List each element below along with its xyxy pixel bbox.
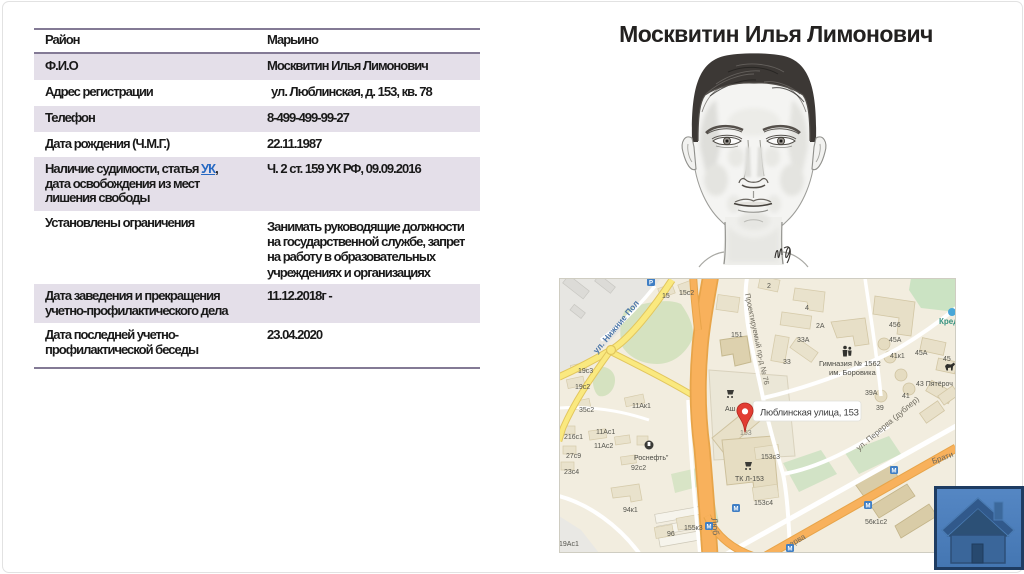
svg-text:23с4: 23с4 xyxy=(564,469,579,476)
svg-text:41к1: 41к1 xyxy=(890,353,905,360)
svg-text:153с3: 153с3 xyxy=(761,454,780,461)
svg-text:33А: 33А xyxy=(797,337,810,344)
svg-text:15с2: 15с2 xyxy=(679,290,694,297)
svg-text:94к1: 94к1 xyxy=(623,507,638,514)
svg-text:33: 33 xyxy=(783,359,791,366)
svg-text:ТК Л-153: ТК Л-153 xyxy=(735,476,764,483)
svg-text:4: 4 xyxy=(805,305,809,312)
svg-text:2: 2 xyxy=(767,283,771,290)
svg-text:2А: 2А xyxy=(816,323,825,330)
svg-text:43 Пятёроч: 43 Пятёроч xyxy=(916,381,953,388)
svg-text:92с2: 92с2 xyxy=(631,465,646,472)
svg-text:39: 39 xyxy=(876,405,884,412)
svg-text:153с4: 153с4 xyxy=(754,500,773,507)
svg-text:27с9: 27с9 xyxy=(566,453,581,460)
svg-text:им. Боровика: им. Боровика xyxy=(829,368,877,377)
svg-text:45А: 45А xyxy=(915,350,928,357)
svg-text:P: P xyxy=(649,281,653,287)
svg-text:19с3: 19с3 xyxy=(578,368,593,375)
svg-text:456: 456 xyxy=(889,322,901,329)
svg-text:41: 41 xyxy=(902,393,910,400)
svg-text:19Ас1: 19Ас1 xyxy=(559,541,579,548)
svg-text:Роснефть”: Роснефть” xyxy=(634,455,669,462)
svg-text:19с2: 19с2 xyxy=(575,384,590,391)
svg-text:M: M xyxy=(892,469,897,475)
svg-text:216с1: 216с1 xyxy=(564,434,583,441)
svg-text:M: M xyxy=(734,507,739,513)
svg-text:Гимназия № 1562: Гимназия № 1562 xyxy=(819,359,881,368)
svg-text:11Ас1: 11Ас1 xyxy=(596,429,615,436)
svg-text:39А: 39А xyxy=(865,390,878,397)
svg-text:153: 153 xyxy=(740,430,752,437)
svg-text:M: M xyxy=(707,525,712,531)
svg-text:M: M xyxy=(788,547,793,553)
svg-text:Аш: Аш xyxy=(725,406,736,413)
svg-text:11Ак1: 11Ак1 xyxy=(632,403,651,410)
svg-text:15: 15 xyxy=(662,293,670,300)
svg-text:151: 151 xyxy=(731,332,743,339)
svg-text:45: 45 xyxy=(943,356,951,363)
svg-text:35с2: 35с2 xyxy=(579,407,594,414)
svg-text:M: M xyxy=(866,504,871,510)
svg-text:96: 96 xyxy=(667,531,675,538)
svg-text:11Ас2: 11Ас2 xyxy=(594,443,613,450)
svg-text:Люблинская улица, 153: Люблинская улица, 153 xyxy=(760,408,859,419)
svg-text:45А: 45А xyxy=(889,337,902,344)
svg-text:56к1с2: 56к1с2 xyxy=(865,519,887,526)
svg-text:Кред: Кред xyxy=(939,317,956,326)
svg-text:155к3: 155к3 xyxy=(684,525,703,532)
